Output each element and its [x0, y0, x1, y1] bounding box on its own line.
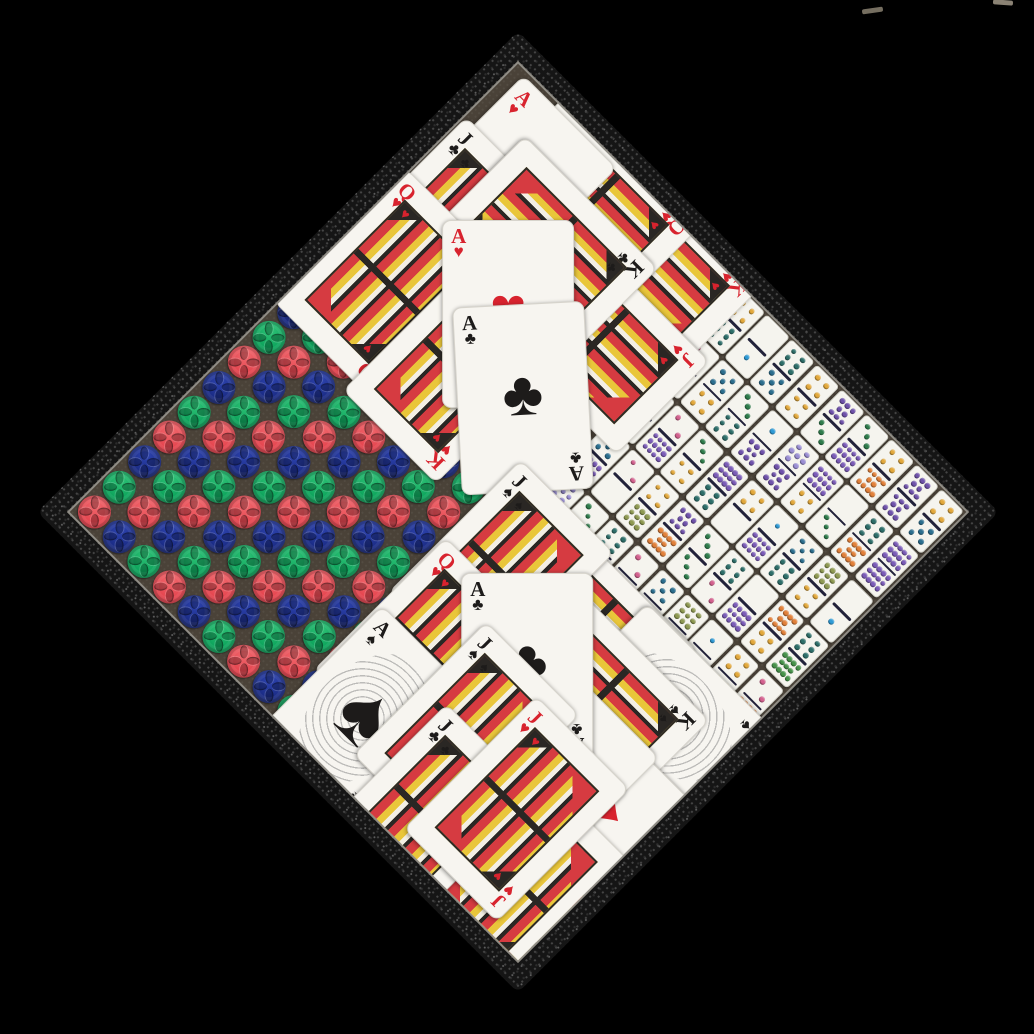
- chip-slot: [290, 514, 298, 527]
- chip-slot: [240, 664, 248, 677]
- domino-pip: [789, 547, 797, 555]
- background-debris-1: [862, 7, 883, 15]
- card-index-text: ♠: [736, 715, 757, 736]
- chip-slot: [165, 521, 173, 534]
- chip-slot: [140, 564, 148, 577]
- domino-pip: [917, 528, 925, 536]
- domino-pip: [708, 597, 716, 605]
- domino-pip: [817, 438, 825, 446]
- domino-pip: [806, 498, 814, 506]
- chip-slot: [340, 415, 348, 428]
- domino-pip: [767, 569, 775, 577]
- domino-pip: [873, 531, 881, 539]
- domino-pip: [814, 640, 822, 648]
- domino-pip: [687, 468, 695, 476]
- card-index-text: J: [487, 961, 507, 963]
- chip-slot: [253, 483, 266, 491]
- chip-slot: [240, 564, 248, 577]
- domino-pip: [654, 501, 662, 509]
- domino-pip: [784, 454, 792, 462]
- chip-slot: [247, 408, 260, 416]
- chip-slot: [265, 589, 273, 602]
- chip-slot: [414, 471, 422, 484]
- chip-slot: [271, 533, 284, 541]
- chip-slot: [265, 621, 273, 634]
- card-corner-index: A♣: [568, 450, 585, 482]
- domino-pip: [798, 547, 806, 555]
- chip-slot: [446, 508, 459, 516]
- domino-pip: [765, 544, 773, 552]
- court-art-suit: ♣: [456, 156, 472, 172]
- chip-slot: [290, 465, 298, 478]
- domino-pip: [734, 653, 742, 661]
- chip-slot: [389, 496, 397, 509]
- chip-slot: [240, 397, 248, 410]
- chip-slot: [340, 496, 348, 509]
- chip-slot: [215, 621, 223, 634]
- chip-slot: [215, 489, 223, 502]
- chip-slot: [328, 408, 341, 416]
- domino-pip: [748, 459, 756, 467]
- domino-pip: [733, 671, 741, 679]
- domino-pip: [788, 566, 796, 574]
- chip-slot: [303, 533, 316, 541]
- chip-slot: [265, 689, 273, 702]
- chip-slot: [179, 458, 192, 466]
- domino-pip: [701, 503, 709, 511]
- domino-pip: [619, 536, 627, 544]
- chip-slot: [321, 383, 334, 391]
- chip-slot: [365, 521, 373, 534]
- background-debris-2: [993, 0, 1013, 6]
- domino-pip: [811, 593, 819, 601]
- chip-slot: [290, 596, 298, 609]
- card-corner-index: A♦: [672, 805, 705, 838]
- domino-pip: [719, 378, 727, 386]
- domino-pip: [605, 533, 613, 541]
- chip-slot: [172, 483, 185, 491]
- court-art-suit: ♥: [431, 428, 447, 444]
- chip-slot: [346, 458, 359, 466]
- domino-pip: [758, 497, 766, 505]
- chip-slot: [165, 571, 173, 584]
- chip-slot: [204, 433, 217, 441]
- domino-pip: [938, 498, 946, 506]
- chip-slot: [271, 333, 284, 341]
- chip-slot: [179, 408, 192, 416]
- court-art-suit: ♥: [361, 339, 377, 355]
- chip-slot: [340, 465, 348, 478]
- domino-pip: [843, 465, 851, 473]
- chip-slot: [278, 408, 291, 416]
- domino-pip: [814, 374, 822, 382]
- chip-slot: [278, 508, 291, 516]
- chip-slot: [179, 607, 192, 615]
- court-art-suit: ♣: [401, 874, 417, 890]
- chip-slot: [122, 533, 135, 541]
- chip-slot: [340, 596, 348, 609]
- court-art-suit: ♠: [510, 499, 525, 514]
- chip-slot: [179, 558, 192, 566]
- chip-slot: [371, 433, 384, 441]
- chip-slot: [365, 571, 373, 584]
- chip-slot: [346, 508, 359, 516]
- domino-pip: [689, 517, 697, 525]
- card-corner-index: A♠: [361, 617, 394, 650]
- chip-slot: [154, 483, 167, 491]
- chip-slot: [222, 632, 235, 640]
- chip-slot: [129, 508, 142, 516]
- chip-slot: [271, 632, 284, 640]
- domino-pip: [822, 523, 830, 531]
- chip-slot: [222, 533, 235, 541]
- domino-pip: [704, 532, 712, 540]
- domino-pip: [854, 454, 862, 462]
- domino-pip: [584, 512, 592, 520]
- domino-pip: [801, 403, 809, 411]
- chip-slot: [165, 422, 173, 435]
- chip-slot: [215, 639, 223, 652]
- domino-pip: [789, 498, 797, 506]
- domino-pip: [719, 368, 727, 376]
- domino-pip: [916, 485, 924, 493]
- domino-pip: [678, 477, 686, 485]
- domino-pip: [779, 558, 787, 566]
- domino-pip: [888, 466, 896, 474]
- domino-pip: [799, 637, 807, 645]
- card-corner-index: A♥: [502, 87, 535, 120]
- domino-pip: [767, 637, 775, 645]
- domino-pip: [739, 619, 747, 627]
- court-art-suit: ♥: [706, 277, 722, 293]
- chip-slot: [154, 583, 167, 591]
- chip-slot: [122, 483, 135, 491]
- domino-pip: [829, 577, 837, 585]
- chip-slot: [91, 496, 99, 509]
- chip-slot: [290, 397, 298, 410]
- domino-pip: [678, 459, 686, 467]
- domino-pip: [679, 528, 687, 536]
- domino-pip: [670, 539, 678, 547]
- chip-slot: [265, 671, 273, 684]
- card-index-text: ♦: [672, 805, 693, 826]
- chip-slot: [116, 521, 124, 534]
- domino-pip: [660, 450, 668, 458]
- chip-slot: [296, 358, 309, 366]
- domino-pip: [897, 457, 905, 465]
- domino-pip: [736, 473, 744, 481]
- chip-slot: [104, 483, 117, 491]
- domino-pip: [819, 489, 827, 497]
- chip-slot: [140, 465, 148, 478]
- chip-slot: [229, 607, 242, 615]
- chip-slot: [315, 471, 323, 484]
- domino-pip: [793, 362, 801, 370]
- domino-pip: [707, 498, 715, 506]
- chip-slot: [204, 383, 217, 391]
- chip-slot: [147, 458, 160, 466]
- domino-pip: [699, 457, 707, 465]
- ace-center-pip: ♣: [501, 359, 545, 432]
- domino-pip: [838, 418, 846, 426]
- domino-pip: [813, 392, 821, 400]
- chip-slot: [165, 489, 173, 502]
- chip-slot: [265, 539, 273, 552]
- chip-slot: [240, 365, 248, 378]
- chip-slot: [165, 539, 173, 552]
- domino-pip: [708, 579, 716, 587]
- card-corner-index: A♥: [451, 228, 466, 259]
- chip-slot: [140, 447, 148, 460]
- chip-slot: [165, 440, 173, 453]
- chip-slot: [365, 471, 373, 484]
- domino-pip: [728, 327, 736, 335]
- chip-slot: [296, 458, 309, 466]
- domino-pip: [903, 503, 911, 511]
- domino-pip: [699, 489, 707, 497]
- court-art-suit: ♣: [602, 258, 618, 274]
- chip-slot: [116, 539, 124, 552]
- chip-slot: [328, 558, 341, 566]
- chip-slot: [353, 483, 366, 491]
- chip-slot: [365, 422, 373, 435]
- chip-slot: [91, 514, 99, 527]
- court-art-suit: ♥: [396, 208, 412, 224]
- chip-slot: [414, 539, 422, 552]
- domino-pip: [787, 368, 795, 376]
- chip-slot: [190, 447, 198, 460]
- domino-pip: [724, 563, 732, 571]
- domino-pip: [713, 425, 721, 433]
- chip-slot: [303, 383, 316, 391]
- card-index-text: A: [682, 815, 705, 838]
- chip-slot: [247, 458, 260, 466]
- chip-slot: [197, 408, 210, 416]
- chip-slot: [271, 682, 284, 690]
- domino-pip: [683, 553, 691, 561]
- domino-pip: [768, 369, 776, 377]
- domino-pip: [868, 490, 876, 498]
- chip-slot: [290, 415, 298, 428]
- domino-pip: [595, 464, 603, 472]
- chip-slot: [321, 533, 334, 541]
- chip-slot: [265, 390, 273, 403]
- chip-slot: [104, 533, 117, 541]
- domino-pip: [790, 348, 798, 356]
- domino-pip: [743, 412, 751, 420]
- chip-slot: [197, 458, 210, 466]
- domino-pip: [830, 478, 838, 486]
- chip-slot: [247, 607, 260, 615]
- chip-slot: [315, 390, 323, 403]
- domino-pip: [799, 537, 807, 545]
- domino-pip: [693, 495, 701, 503]
- domino-pip: [808, 547, 816, 555]
- chip-slot: [315, 372, 323, 385]
- domino-pip: [783, 473, 791, 481]
- chip-slot: [204, 632, 217, 640]
- chip-slot: [389, 546, 397, 559]
- chip-slot: [340, 514, 348, 527]
- chip-slot: [129, 558, 142, 566]
- card-index-text: ♦: [499, 951, 516, 963]
- chip-slot: [253, 682, 266, 690]
- chip-slot: [278, 358, 291, 366]
- chip-slot: [439, 514, 447, 527]
- domino-pip: [938, 516, 946, 524]
- chip-slot: [396, 558, 409, 566]
- card-corner-index: A♣: [462, 314, 479, 346]
- domino-pip: [793, 643, 801, 651]
- chip-slot: [229, 358, 242, 366]
- domino-pip: [784, 353, 792, 361]
- domino-pip: [738, 317, 746, 325]
- domino-pip: [669, 587, 677, 595]
- chip-slot: [340, 614, 348, 627]
- chip-slot: [215, 440, 223, 453]
- domino-pip: [716, 339, 724, 347]
- photo-stage: K♥K♥♥♥Q♥Q♥♥♥J♥J♥♥♥A♥A♥♥J♣J♣♣♣K♣K♣♣♣Q♥Q♥♥…: [0, 0, 1034, 1034]
- chip-slot: [190, 465, 198, 478]
- domino-pip: [724, 413, 732, 421]
- chip-slot: [215, 390, 223, 403]
- domino-pip: [841, 410, 849, 418]
- chip-slot: [190, 546, 198, 559]
- domino-pip: [638, 518, 646, 526]
- chip-slot: [278, 657, 291, 665]
- chip-slot: [240, 415, 248, 428]
- domino-pip: [613, 541, 621, 549]
- chip-slot: [290, 664, 298, 677]
- chip-slot: [265, 521, 273, 534]
- chip-slot: [421, 483, 434, 491]
- domino-pip: [733, 571, 741, 579]
- domino-pip: [699, 447, 707, 455]
- domino-pip: [808, 646, 816, 654]
- chip-slot: [204, 583, 217, 591]
- domino-pip: [659, 587, 667, 595]
- chip-slot: [265, 639, 273, 652]
- chip-slot: [346, 408, 359, 416]
- chip-slot: [403, 483, 416, 491]
- domino-pip: [743, 354, 751, 362]
- chip-slot: [378, 558, 391, 566]
- domino-pip: [773, 564, 781, 572]
- chip-slot: [371, 533, 384, 541]
- chip-slot: [190, 614, 198, 627]
- domino-pip: [665, 444, 673, 452]
- chip-slot: [215, 372, 223, 385]
- domino-pip: [725, 484, 733, 492]
- domino-pip: [822, 382, 830, 390]
- chip-slot: [315, 621, 323, 634]
- domino-pip: [863, 442, 871, 450]
- chip-slot: [340, 564, 348, 577]
- domino-pip: [683, 573, 691, 581]
- card-index-text: ♣: [568, 450, 584, 465]
- chip-slot: [204, 533, 217, 541]
- domino-pip: [629, 458, 637, 466]
- domino-pip: [634, 553, 642, 561]
- domino-pip: [769, 428, 777, 436]
- domino-pip: [864, 523, 872, 531]
- chip-slot: [365, 589, 373, 602]
- domino-pip: [794, 593, 802, 601]
- chip-slot: [197, 508, 210, 516]
- domino-pip: [804, 383, 812, 391]
- chip-slot: [403, 533, 416, 541]
- chip-slot: [253, 583, 266, 591]
- domino-pip: [659, 550, 667, 558]
- domino-pip: [767, 388, 775, 396]
- chip-slot: [278, 458, 291, 466]
- chip-slot: [190, 514, 198, 527]
- domino-pip: [699, 438, 707, 446]
- chip-slot: [328, 458, 341, 466]
- chip-slot: [253, 433, 266, 441]
- chip-slot: [428, 508, 441, 516]
- domino-pip: [758, 379, 766, 387]
- domino-pip: [768, 379, 776, 387]
- domino-pip: [775, 476, 783, 484]
- domino-pip: [795, 443, 803, 451]
- domino-pip: [870, 517, 878, 525]
- domino-pip: [674, 414, 682, 422]
- domino-pip: [878, 526, 886, 534]
- domino-pip: [802, 652, 810, 660]
- domino-pip: [584, 502, 592, 510]
- chip-slot: [265, 471, 273, 484]
- domino-pip: [758, 448, 766, 456]
- domino-pip: [645, 492, 653, 500]
- domino-pip: [792, 412, 800, 420]
- domino-pip: [799, 458, 807, 466]
- card-corner-index: A♠: [736, 715, 769, 748]
- chip-slot: [378, 508, 391, 516]
- chip-slot: [389, 465, 397, 478]
- chip-slot: [79, 508, 92, 516]
- domino-pip: [629, 476, 637, 484]
- domino-pip: [718, 419, 726, 427]
- chip-slot: [179, 508, 192, 516]
- domino-pip: [798, 489, 806, 497]
- board-felt: K♥K♥♥♥Q♥Q♥♥♥J♥J♥♥♥A♥A♥♥J♣J♣♣♣K♣K♣♣♣Q♥Q♥♥…: [67, 61, 969, 963]
- domino-pip: [798, 557, 806, 565]
- chip-slot: [346, 558, 359, 566]
- domino-pip: [863, 433, 871, 441]
- chip-slot: [353, 583, 366, 591]
- domino-pip: [663, 492, 671, 500]
- chip-slot: [229, 558, 242, 566]
- domino-pip: [818, 419, 826, 427]
- domino-pip: [683, 563, 691, 571]
- domino-pip: [604, 452, 612, 460]
- domino-pip: [867, 537, 875, 545]
- domino-pip: [849, 460, 857, 468]
- chip-slot: [229, 408, 242, 416]
- chip-slot: [378, 458, 391, 466]
- chip-slot: [215, 589, 223, 602]
- chip-slot: [296, 657, 309, 665]
- chip-slot: [414, 521, 422, 534]
- chip-slot: [265, 322, 273, 335]
- chip-slot: [215, 471, 223, 484]
- domino-pip: [660, 540, 668, 548]
- domino-pip: [924, 482, 932, 490]
- chip-slot: [340, 546, 348, 559]
- domino-pip: [895, 506, 903, 514]
- domino-pip: [754, 555, 762, 563]
